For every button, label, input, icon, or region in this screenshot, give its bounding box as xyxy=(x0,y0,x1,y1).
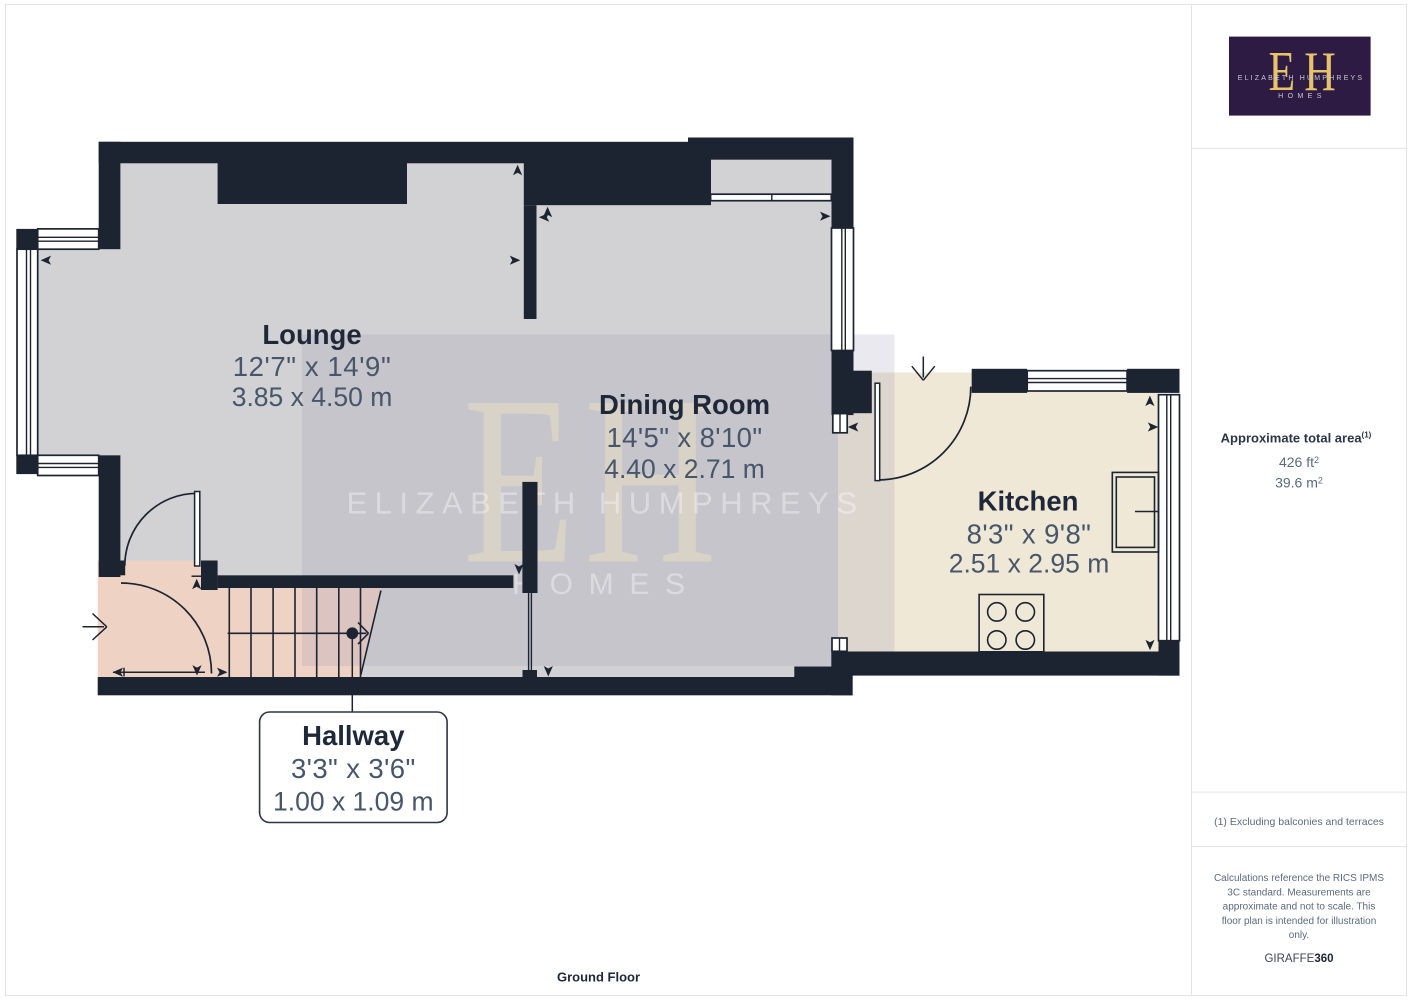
svg-text:8'3" x 9'8": 8'3" x 9'8" xyxy=(967,519,1092,550)
svg-text:ELIZABETH HUMPHREYS: ELIZABETH HUMPHREYS xyxy=(1238,75,1365,82)
svg-text:3.85 x 4.50 m: 3.85 x 4.50 m xyxy=(232,382,393,412)
svg-text:HOMES: HOMES xyxy=(1278,93,1326,100)
svg-text:Lounge: Lounge xyxy=(262,319,361,350)
svg-text:(1) Excluding balconies and te: (1) Excluding balconies and terraces xyxy=(1214,816,1384,828)
svg-text:4.40 x 2.71 m: 4.40 x 2.71 m xyxy=(604,454,765,484)
svg-text:Dining Room: Dining Room xyxy=(599,389,770,420)
svg-text:ELIZABETH HUMPHREYS: ELIZABETH HUMPHREYS xyxy=(346,486,864,521)
svg-text:Approximate total area(1): Approximate total area(1) xyxy=(1221,431,1372,446)
svg-text:HOMES: HOMES xyxy=(512,568,701,601)
svg-text:Hallway: Hallway xyxy=(302,720,405,751)
svg-text:floor plan is intended for ill: floor plan is intended for illustration xyxy=(1222,916,1377,927)
svg-text:approximate and not to scale.: approximate and not to scale. This xyxy=(1223,902,1376,913)
svg-text:14'5" x 8'10": 14'5" x 8'10" xyxy=(606,422,762,453)
svg-text:3'3" x 3'6": 3'3" x 3'6" xyxy=(291,753,416,784)
svg-text:39.6 m2: 39.6 m2 xyxy=(1275,475,1323,491)
svg-text:only.: only. xyxy=(1289,930,1309,941)
svg-text:GIRAFFE360: GIRAFFE360 xyxy=(1264,953,1333,965)
svg-text:2.51 x 2.95 m: 2.51 x 2.95 m xyxy=(949,549,1110,579)
svg-text:3C standard. Measurements are: 3C standard. Measurements are xyxy=(1227,887,1371,898)
svg-text:Ground Floor: Ground Floor xyxy=(557,970,640,985)
svg-text:Calculations reference the RIC: Calculations reference the RICS IPMS xyxy=(1214,873,1384,884)
svg-text:1.00 x 1.09 m: 1.00 x 1.09 m xyxy=(273,787,434,817)
svg-text:426 ft2: 426 ft2 xyxy=(1279,454,1319,470)
svg-text:Kitchen: Kitchen xyxy=(978,486,1079,517)
svg-text:12'7" x 14'9": 12'7" x 14'9" xyxy=(233,351,392,382)
